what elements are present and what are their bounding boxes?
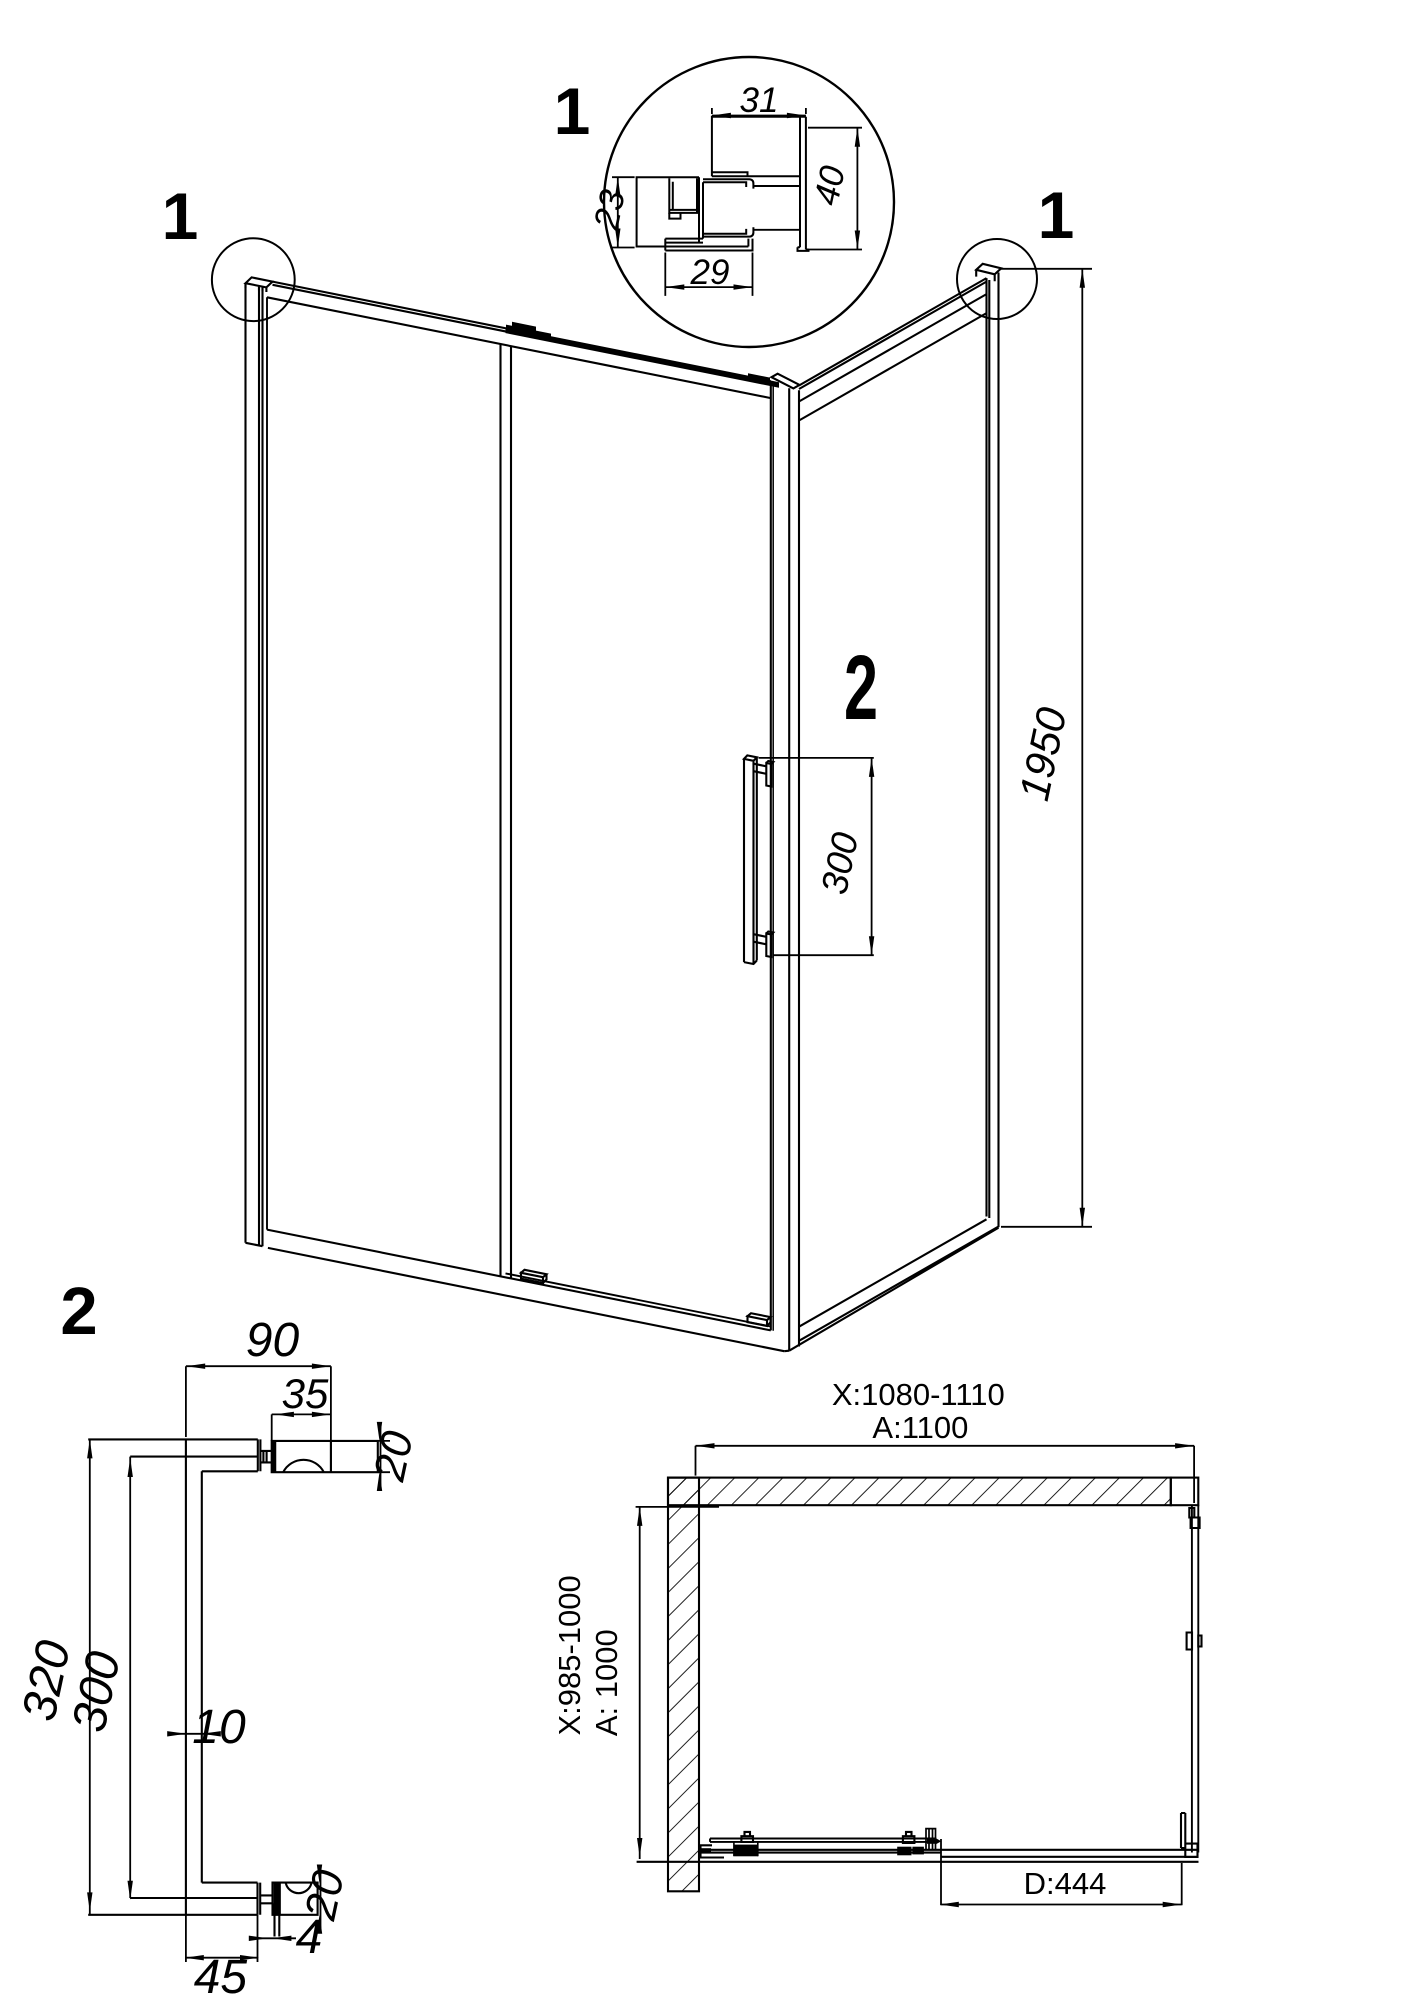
svg-text:20: 20 xyxy=(365,1426,423,1486)
svg-text:45: 45 xyxy=(194,1951,248,2000)
svg-text:10: 10 xyxy=(192,1701,246,1754)
svg-text:300: 300 xyxy=(813,829,866,898)
svg-text:29: 29 xyxy=(690,253,730,292)
svg-text:1: 1 xyxy=(162,179,199,253)
svg-text:1: 1 xyxy=(554,74,591,148)
svg-text:A: 1000: A: 1000 xyxy=(589,1629,624,1736)
svg-text:40: 40 xyxy=(807,162,853,209)
svg-text:X:985-1000: X:985-1000 xyxy=(552,1575,587,1735)
svg-text:2: 2 xyxy=(844,637,878,739)
svg-text:35: 35 xyxy=(282,1370,329,1417)
svg-text:1950: 1950 xyxy=(1010,703,1076,805)
svg-text:31: 31 xyxy=(740,81,779,120)
svg-text:4: 4 xyxy=(296,1911,323,1964)
svg-text:X:1080-1110: X:1080-1110 xyxy=(832,1377,1005,1412)
svg-text:1: 1 xyxy=(1038,178,1075,252)
svg-text:90: 90 xyxy=(246,1314,300,1367)
svg-text:23: 23 xyxy=(586,186,633,234)
svg-text:A:1100: A:1100 xyxy=(872,1410,968,1445)
svg-text:D:444: D:444 xyxy=(1024,1866,1107,1901)
svg-text:2: 2 xyxy=(60,1274,97,1349)
